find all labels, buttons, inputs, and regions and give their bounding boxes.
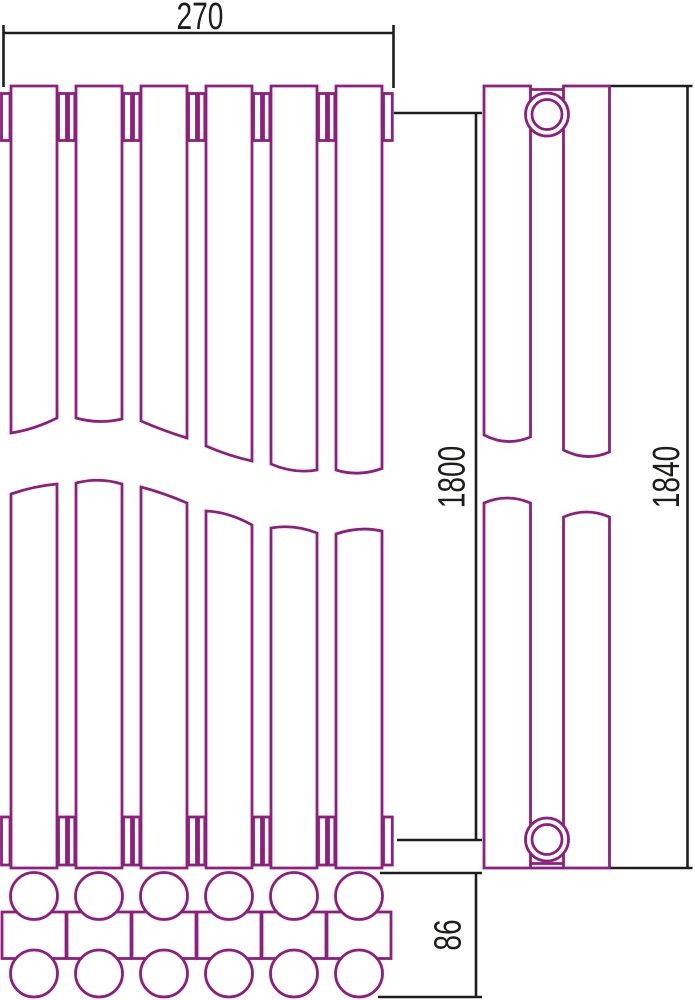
connector — [319, 94, 327, 141]
slat — [271, 527, 317, 868]
slat — [206, 86, 252, 461]
connector — [329, 817, 335, 865]
side-strip-upper-right — [564, 86, 610, 457]
dimension-height-1800: 1800 — [394, 113, 482, 840]
connector — [254, 94, 262, 141]
side-strip-lower-left — [484, 498, 531, 868]
slat — [76, 86, 122, 422]
dimension-label-height: 1800 — [432, 446, 474, 509]
connector — [134, 817, 140, 865]
connector — [329, 94, 335, 141]
tube-circle — [206, 873, 253, 920]
dimension-width-270: 270 — [4, 0, 394, 88]
tube-circle — [271, 950, 318, 997]
connector — [384, 817, 393, 865]
front-lower-slats — [11, 480, 382, 868]
connector — [254, 817, 262, 865]
slat — [11, 86, 57, 433]
slat — [336, 529, 382, 868]
side-strip-lower-right — [564, 512, 610, 868]
front-upper-slats — [11, 86, 382, 473]
tube-circle — [271, 873, 318, 920]
side-view — [484, 86, 610, 868]
front-view — [2, 86, 393, 868]
connector — [189, 817, 197, 865]
slat — [141, 86, 187, 438]
connector — [2, 94, 11, 141]
slat — [336, 86, 382, 473]
dimension-label-overall-height: 1840 — [646, 446, 688, 509]
radiator-technical-drawing: 270 1800 1840 86 — [0, 0, 695, 1000]
connector — [59, 94, 67, 141]
side-strip-upper-left — [484, 86, 531, 442]
drawing-canvas: 270 1800 1840 86 — [0, 0, 695, 1000]
connector — [384, 94, 393, 141]
front-bottom-connectors — [2, 817, 393, 865]
connector — [189, 94, 197, 141]
connector — [199, 817, 205, 865]
tube-circle — [141, 873, 188, 920]
bottom-pipe-boss — [526, 818, 569, 861]
dimension-depth-86: 86 — [378, 873, 482, 997]
connector — [264, 94, 270, 141]
top-pipe-boss — [526, 93, 569, 136]
connector — [59, 817, 67, 865]
tube-circle — [206, 950, 253, 997]
slat — [141, 487, 187, 868]
dimension-overall-height-1840: 1840 — [610, 86, 693, 868]
front-top-connectors — [2, 94, 393, 141]
tube-circle — [336, 950, 383, 997]
dimension-label-depth: 86 — [428, 919, 470, 950]
connector — [319, 817, 327, 865]
connector — [69, 817, 75, 865]
top-view — [2, 873, 391, 998]
connector — [199, 94, 205, 141]
tube-circle — [76, 873, 123, 920]
connector — [134, 94, 140, 141]
slat — [76, 480, 122, 868]
slat — [11, 484, 57, 868]
collector-bricks — [2, 912, 391, 959]
slat — [206, 511, 252, 868]
slat — [271, 86, 317, 471]
tube-circle — [141, 950, 188, 997]
dimension-label-width: 270 — [177, 0, 224, 38]
tube-circle — [11, 950, 58, 997]
tube-circle — [76, 950, 123, 997]
connector — [124, 94, 132, 141]
tube-circle — [336, 873, 383, 920]
tube-circle — [11, 873, 58, 920]
connector — [2, 817, 11, 865]
connector — [69, 94, 75, 141]
connector — [124, 817, 132, 865]
connector — [264, 817, 270, 865]
